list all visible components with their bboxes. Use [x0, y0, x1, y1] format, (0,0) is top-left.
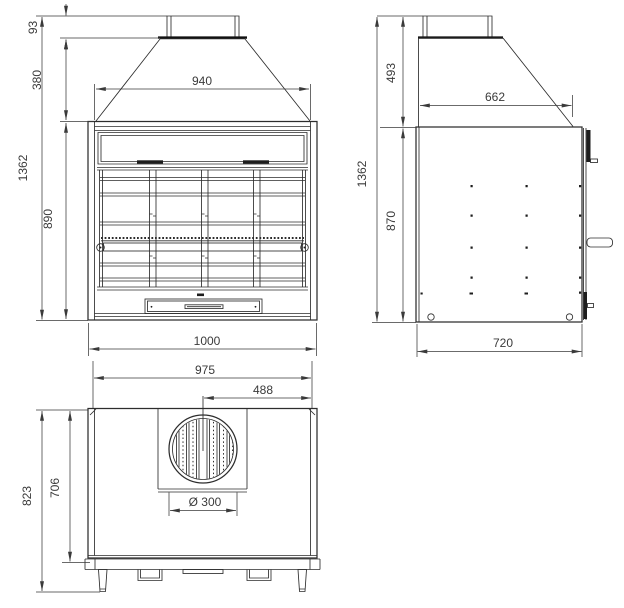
top-dimensions: 975 488 823 706 Ø 300 — [20, 361, 312, 592]
side-hinge-top — [587, 130, 591, 162]
drawing-sheet: 93 380 1362 890 940 1000 493 1362 870 66… — [0, 0, 624, 608]
top-center-tray — [183, 570, 223, 574]
front-upper-chamber — [98, 133, 307, 165]
side-view — [416, 16, 613, 322]
side-body-outline — [416, 127, 582, 322]
front-grill-posts — [150, 170, 261, 287]
side-dimensions: 493 1362 870 662 720 — [355, 16, 582, 357]
side-chimney — [423, 16, 492, 38]
technical-drawing: 93 380 1362 890 940 1000 493 1362 870 66… — [0, 0, 624, 608]
dim-top-overall-depth-label: 823 — [20, 486, 34, 506]
dim-side-hood-depth-label: 662 — [485, 90, 505, 104]
dim-side-body-height-label: 870 — [384, 211, 398, 231]
dim-side-hood-height-label: 493 — [384, 63, 398, 83]
side-rivet-dots — [421, 185, 582, 295]
front-spit-bar — [97, 243, 309, 251]
side-hinge-bottom-pin — [588, 304, 594, 308]
dim-front-overall-width-label: 1000 — [194, 334, 221, 348]
top-foot-right — [298, 570, 307, 592]
side-extension-lines — [372, 16, 582, 357]
dim-front-hood-width-label: 940 — [192, 74, 212, 88]
top-body-inner-lines — [90, 409, 315, 556]
top-flue-grate — [177, 415, 233, 483]
side-hinge-bottom — [584, 292, 588, 319]
dim-top-overall-width-label: 975 — [195, 363, 215, 377]
side-door-panel — [584, 128, 587, 320]
dim-front-firebox-height-label: 890 — [41, 209, 55, 229]
front-damper-tab-right — [243, 160, 269, 163]
dim-side-overall-height-label: 1362 — [355, 160, 369, 187]
front-chimney — [167, 16, 239, 38]
dim-top-flue-offset-label: 488 — [253, 383, 273, 397]
dim-top-body-depth-label: 706 — [48, 478, 62, 498]
dim-top-flue-diameter-label: Ø 300 — [189, 495, 222, 509]
front-extension-lines — [36, 16, 317, 356]
top-bracket-left — [138, 570, 162, 581]
side-foot-circle-left — [428, 314, 434, 320]
dim-front-chimney-height-label: 93 — [26, 21, 40, 35]
top-foot-left — [99, 570, 108, 592]
side-hinge-top-pin — [591, 159, 598, 163]
front-damper-tab-left — [137, 160, 163, 163]
side-hood — [419, 38, 574, 127]
dim-front-overall-height-label: 1362 — [16, 154, 30, 181]
front-side-strips — [100, 170, 306, 287]
front-grill-bars — [100, 178, 305, 282]
front-dimensions: 93 380 1362 890 940 1000 — [16, 4, 317, 356]
front-latch-dash — [197, 294, 204, 297]
front-rail — [97, 168, 308, 171]
dim-side-body-depth-label: 720 — [493, 336, 513, 350]
top-bracket-right — [247, 570, 271, 581]
front-view — [88, 16, 317, 320]
side-door-handle — [587, 238, 613, 247]
top-view — [85, 396, 320, 592]
front-ash-drawer — [145, 299, 262, 314]
dim-front-hood-height-label: 380 — [30, 70, 44, 90]
front-grill-bottom — [97, 287, 308, 290]
side-foot-circle-right — [566, 314, 572, 320]
